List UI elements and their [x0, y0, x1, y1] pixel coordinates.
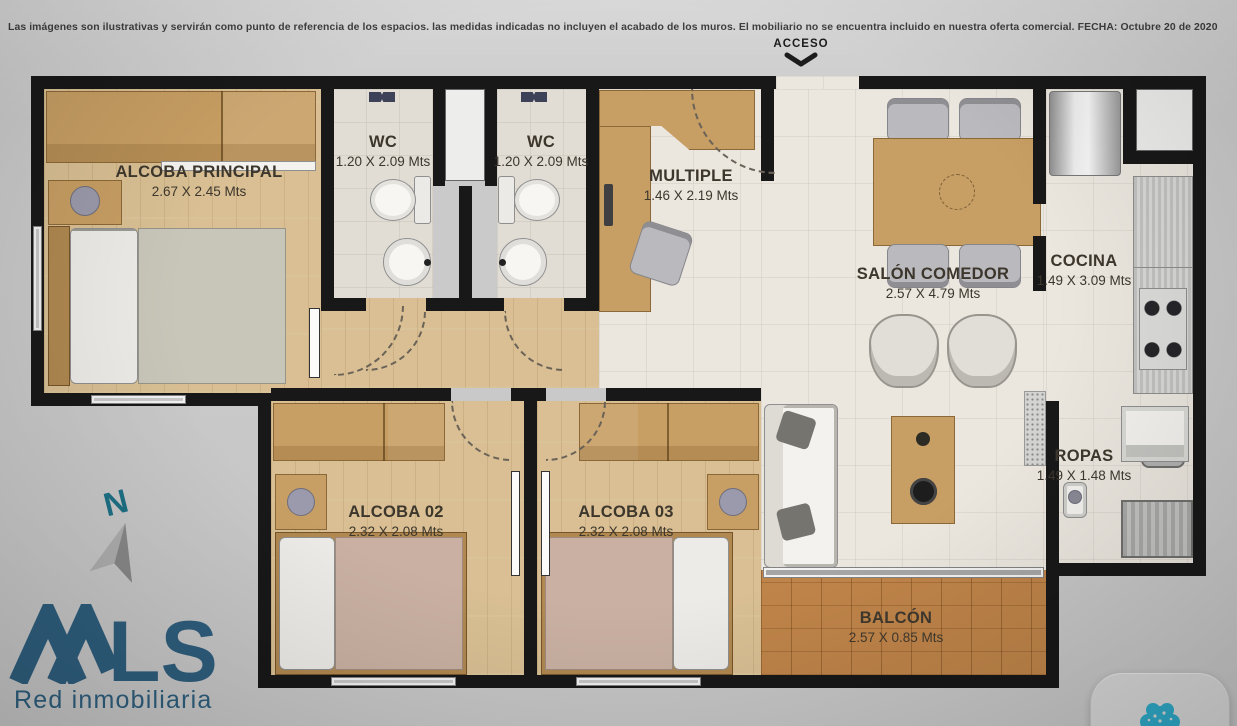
wall-ropas-bottom: [1046, 563, 1206, 576]
closet-alcoba03: [579, 403, 759, 461]
shower-valve-wc1: [369, 92, 395, 102]
bed-principal-headboard: [48, 226, 70, 386]
armchair: [947, 314, 1017, 388]
room-label-ropas: ROPAS 1.49 X 1.48 Mts: [984, 446, 1184, 484]
room-label-cocina: COCINA 1.49 X 3.09 Mts: [984, 251, 1184, 289]
closet02-divider: [383, 403, 385, 461]
toilet-tank-wc1: [414, 176, 431, 224]
window-alcoba02: [331, 677, 456, 686]
lamp-principal: [70, 186, 100, 216]
north-label: N: [100, 482, 132, 525]
wall-top-right: [859, 76, 1206, 89]
wall-wc-bottom-c: [564, 298, 599, 311]
toilet-tank-wc2: [498, 176, 515, 224]
toilet-wc2: [514, 179, 560, 221]
wall-wc-mid: [459, 186, 472, 311]
dining-chair: [959, 98, 1021, 142]
bed03-mattress: [545, 537, 673, 670]
room-label-wc1: WC 1.20 X 2.09 Mts: [313, 132, 453, 170]
tree-icon: [1131, 697, 1189, 726]
dining-chair: [887, 98, 949, 142]
wall-wc-bottom-b: [426, 298, 504, 311]
closet03-divider: [667, 403, 669, 461]
sink-wc2: [499, 238, 547, 286]
table-centerpiece: [939, 174, 975, 210]
bed02-mattress: [335, 537, 463, 670]
mls-logo-mark: LS: [8, 604, 238, 684]
window-alcoba-principal-west: [33, 226, 42, 331]
closet-alcoba02: [273, 403, 445, 461]
fridge: [1049, 91, 1121, 176]
shower-valve-wc2: [521, 92, 547, 102]
floorplan: ALCOBA PRINCIPAL 2.67 X 2.45 Mts WC 1.20…: [31, 76, 1206, 688]
heater-knob: [1068, 490, 1082, 504]
mls-tagline: Red inmobiliaria: [14, 686, 212, 715]
room-label-wc2: WC 1.20 X 2.09 Mts: [471, 132, 611, 170]
builder-badge: [1090, 672, 1230, 726]
bed02-pillow: [279, 537, 335, 670]
balcony-sliding-window: [763, 567, 1044, 578]
wall-top-left: [31, 76, 776, 89]
toilet-wc1: [370, 179, 416, 221]
entry-gap-floor: [776, 76, 859, 89]
room-label-alcoba-principal: ALCOBA PRINCIPAL 2.67 X 2.45 Mts: [99, 162, 299, 200]
wall-lower-left: [258, 393, 271, 688]
stove: [1139, 288, 1187, 370]
bed-principal-pillows: [70, 228, 138, 384]
room-label-multiple: MULTIPLE 1.46 X 2.19 Mts: [591, 166, 791, 204]
disclaimer-text: Las imágenes son ilustrativas y servirán…: [8, 22, 1233, 33]
utility-sink: [1121, 500, 1193, 558]
access-chevron-down-icon: [784, 52, 818, 67]
closet-sliding-door: [511, 471, 520, 576]
wardrobe: [46, 91, 316, 163]
room-label-balcon: BALCÓN 2.57 X 0.85 Mts: [796, 608, 996, 646]
north-compass: N: [88, 484, 158, 594]
faucet-wc1: [424, 259, 431, 266]
bed-principal-mattress: [138, 228, 286, 384]
tv-speaker: [910, 478, 937, 505]
wall-corridor-alcobas-a: [271, 388, 451, 401]
mls-logo: LS Red inmobiliaria: [8, 604, 238, 722]
plant: [916, 432, 930, 446]
wall-alcp-wc: [321, 89, 334, 301]
north-arrow-icon: [90, 520, 146, 584]
mls-logo-ls-text: LS: [108, 604, 218, 684]
bed03-pillow: [673, 537, 729, 670]
window-alcoba03: [576, 677, 701, 686]
alcoba-principal-door-leaf: [309, 308, 320, 378]
floorplan-page: Las imágenes son ilustrativas y servirán…: [0, 0, 1237, 726]
wall-corridor-alcobas-c: [606, 388, 761, 401]
corner-duct-shaft: [1136, 89, 1193, 151]
faucet-wc2: [499, 259, 506, 266]
room-label-alcoba02: ALCOBA 02 2.32 X 2.08 Mts: [296, 502, 496, 540]
wall-corner-shaft-bottom: [1123, 151, 1206, 164]
armchair: [869, 314, 939, 388]
room-label-alcoba03: ALCOBA 03 2.32 X 2.08 Mts: [526, 502, 726, 540]
access-label: ACCESO: [741, 38, 861, 50]
wall-living-ropas: [1046, 401, 1059, 688]
wall-kitchen-stub-a: [1033, 89, 1046, 204]
wardrobe-divider: [221, 91, 223, 163]
window-alcoba-principal-south: [91, 395, 186, 404]
